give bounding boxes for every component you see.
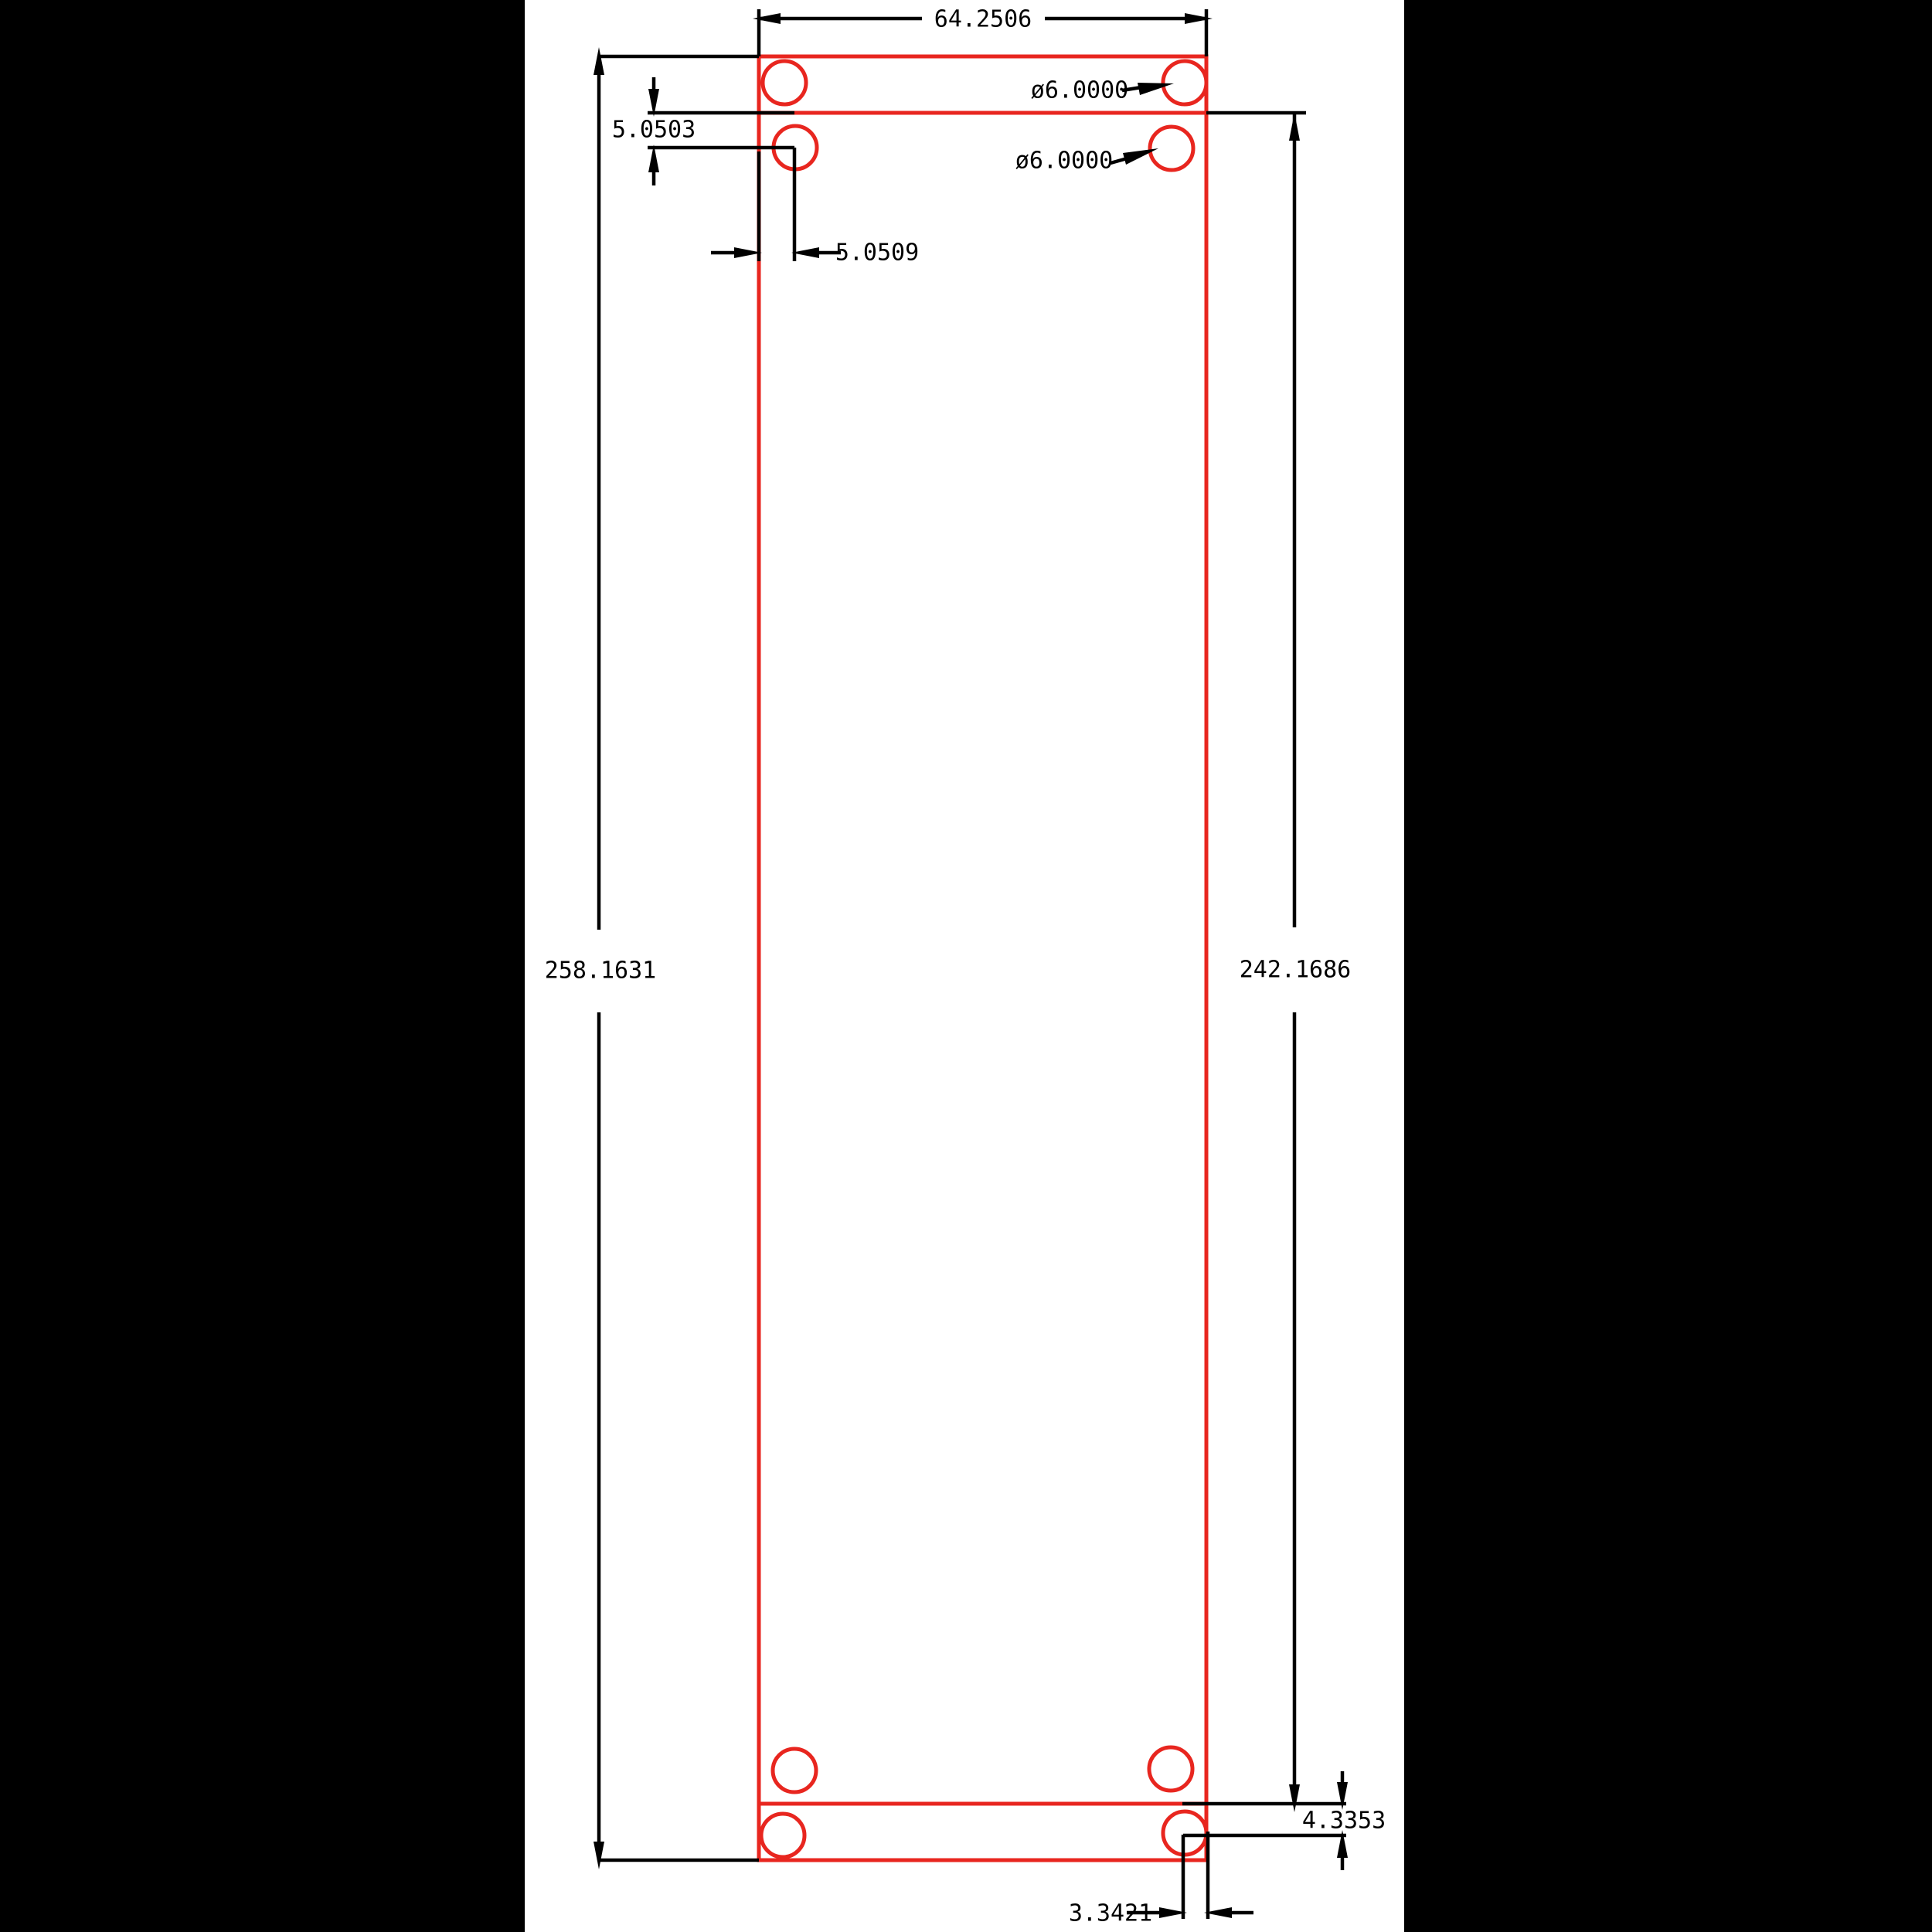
hole-top-right xyxy=(1163,61,1206,104)
dimension-top-hole-horizontal: 5.0509 xyxy=(711,148,919,267)
arrowhead-up-icon xyxy=(1289,113,1300,141)
leader-arrowhead-icon xyxy=(1138,83,1174,95)
plate-layer xyxy=(759,56,1206,1860)
leader-hole-diameter-second: ø6.0000 xyxy=(1015,148,1158,175)
dimension-overall-height-label: 258.1631 xyxy=(545,957,657,985)
dimension-top-hole-horizontal-label: 5.0509 xyxy=(835,240,919,267)
arrowhead-down-icon xyxy=(1289,1784,1300,1812)
arrowhead-right-icon xyxy=(1185,13,1213,24)
hole-top-left xyxy=(763,61,806,104)
dimension-bottom-hole-horizontal-label: 3.3421 xyxy=(1069,1900,1152,1927)
arrowhead-down-icon xyxy=(594,1842,604,1869)
cad-drawing: 64.2506 258.1631 242.1686 5.0503 xyxy=(0,0,1932,1932)
dimension-width: 64.2506 xyxy=(753,6,1213,57)
dimension-bottom-hole-vertical: 4.3353 xyxy=(1183,1771,1386,1870)
hole-diameter-top-label: ø6.0000 xyxy=(1031,77,1128,104)
dimension-width-label: 64.2506 xyxy=(934,6,1032,33)
leader-hole-diameter-top: ø6.0000 xyxy=(1031,77,1174,104)
matte-right xyxy=(1404,0,1932,1932)
hole-bottom-left xyxy=(761,1814,804,1857)
matte-left xyxy=(0,0,525,1932)
hole-row3-right xyxy=(1149,1747,1192,1791)
dimension-bottom-hole-horizontal: 3.3421 xyxy=(1069,1832,1253,1927)
dimension-overall-height: 258.1631 xyxy=(545,47,759,1869)
hole-diameter-second-label: ø6.0000 xyxy=(1015,148,1113,175)
dimension-top-hole-vertical-label: 5.0503 xyxy=(612,117,696,144)
dimension-top-hole-horizontal-lines xyxy=(711,148,841,261)
hole-row3-left xyxy=(773,1749,816,1792)
arrowhead-down-icon xyxy=(1337,1782,1348,1810)
plate-outline xyxy=(759,56,1206,1860)
dimensions-layer: 64.2506 258.1631 242.1686 5.0503 xyxy=(545,6,1386,1927)
arrowhead-left-icon xyxy=(753,13,781,24)
hole-row2-right xyxy=(1150,127,1193,170)
dimension-inner-height-label: 242.1686 xyxy=(1240,957,1352,984)
arrowhead-up-icon xyxy=(594,47,604,75)
dimension-bottom-hole-vertical-label: 4.3353 xyxy=(1302,1808,1386,1835)
